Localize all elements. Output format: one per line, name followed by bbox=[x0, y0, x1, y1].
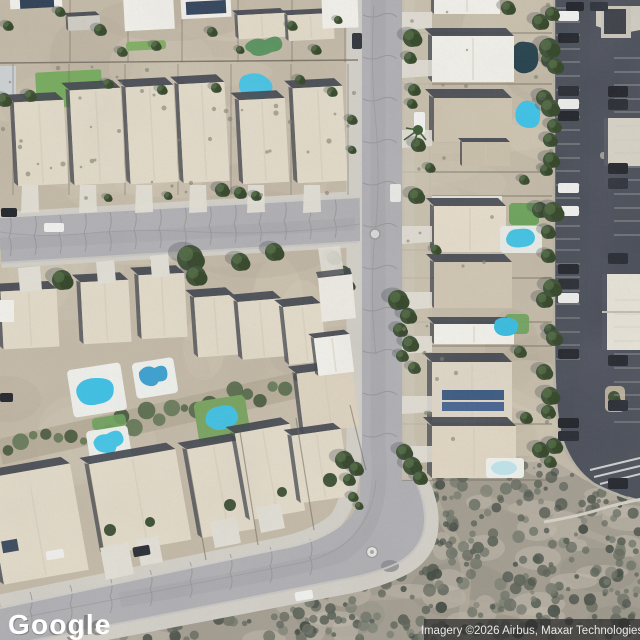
svg-text:Imagery ©2026 Airbus, Maxar Te: Imagery ©2026 Airbus, Maxar Technologies bbox=[421, 625, 640, 637]
svg-text:Google: Google bbox=[8, 609, 112, 640]
